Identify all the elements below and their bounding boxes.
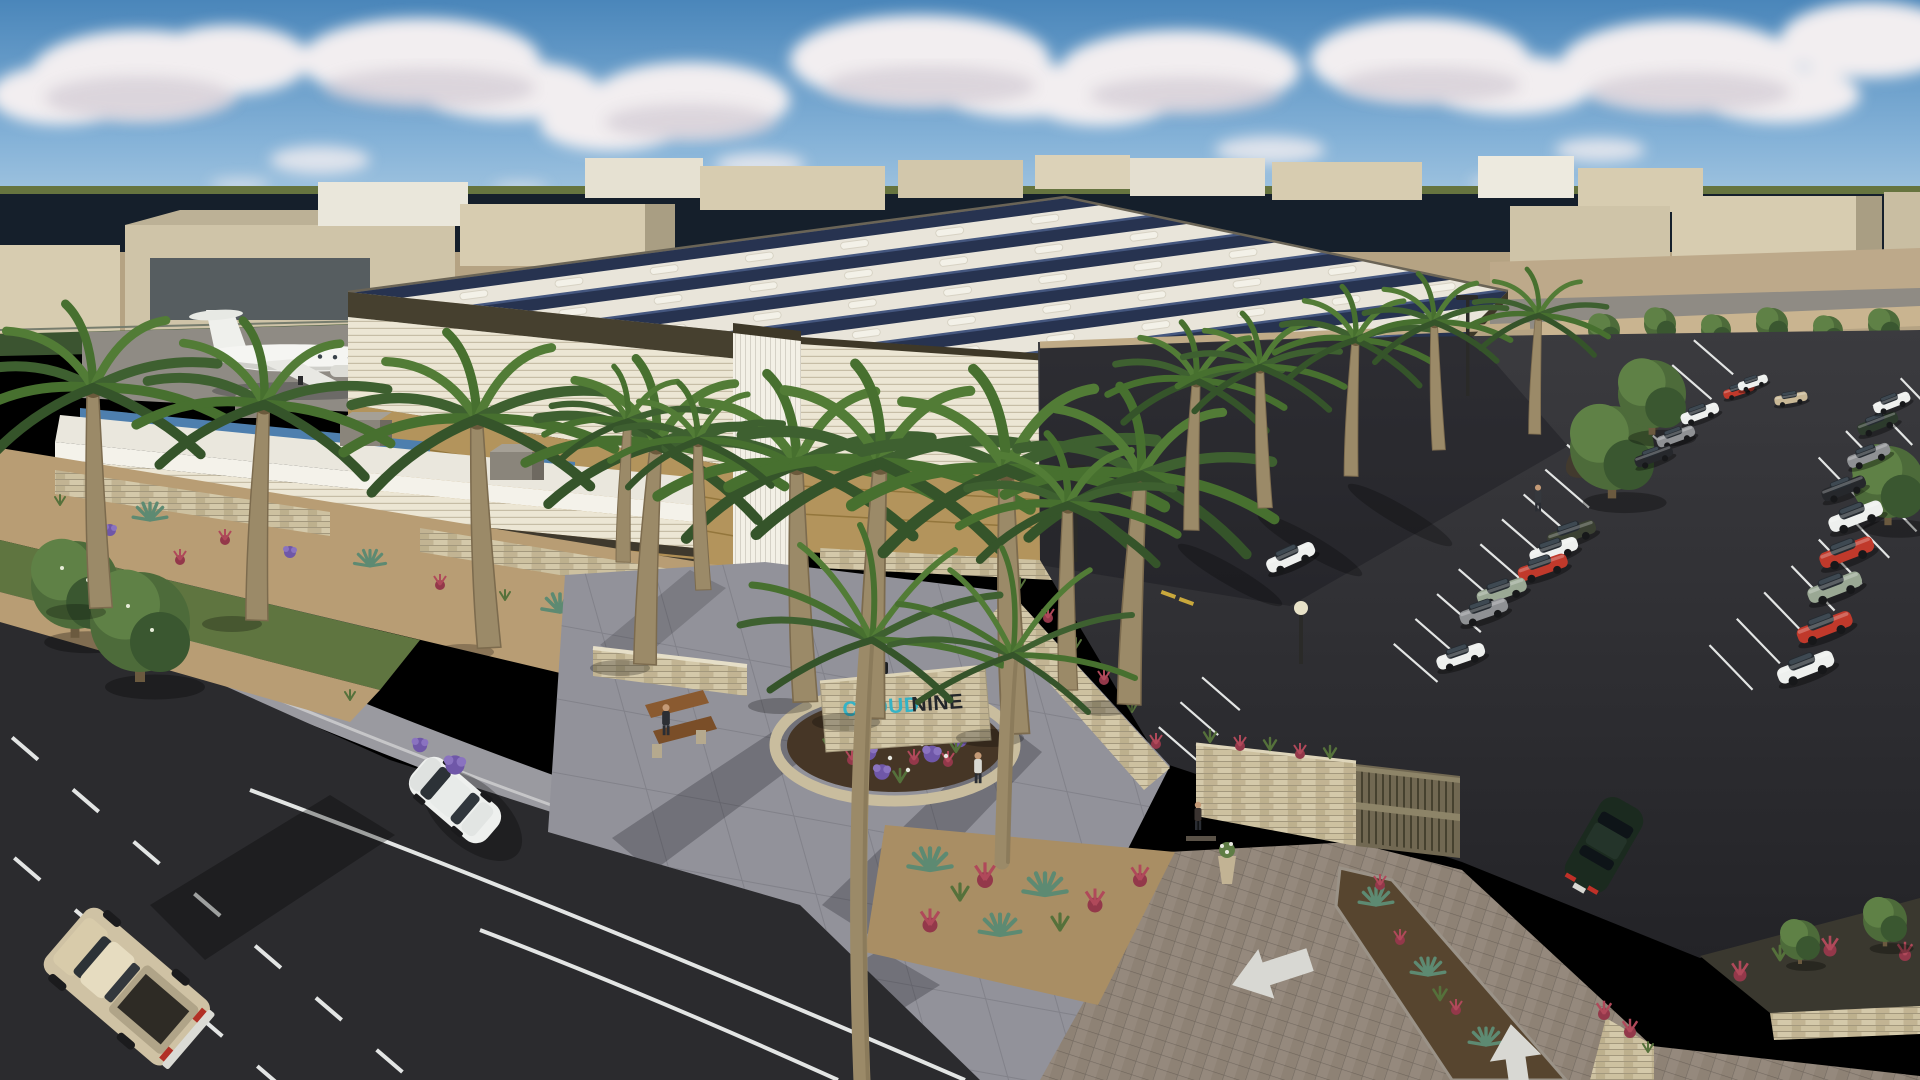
pedestrian <box>1195 802 1202 830</box>
bench <box>1186 836 1216 841</box>
security-gate <box>1356 764 1460 858</box>
rendering-canvas: CLOUD NINE <box>0 0 1920 1080</box>
